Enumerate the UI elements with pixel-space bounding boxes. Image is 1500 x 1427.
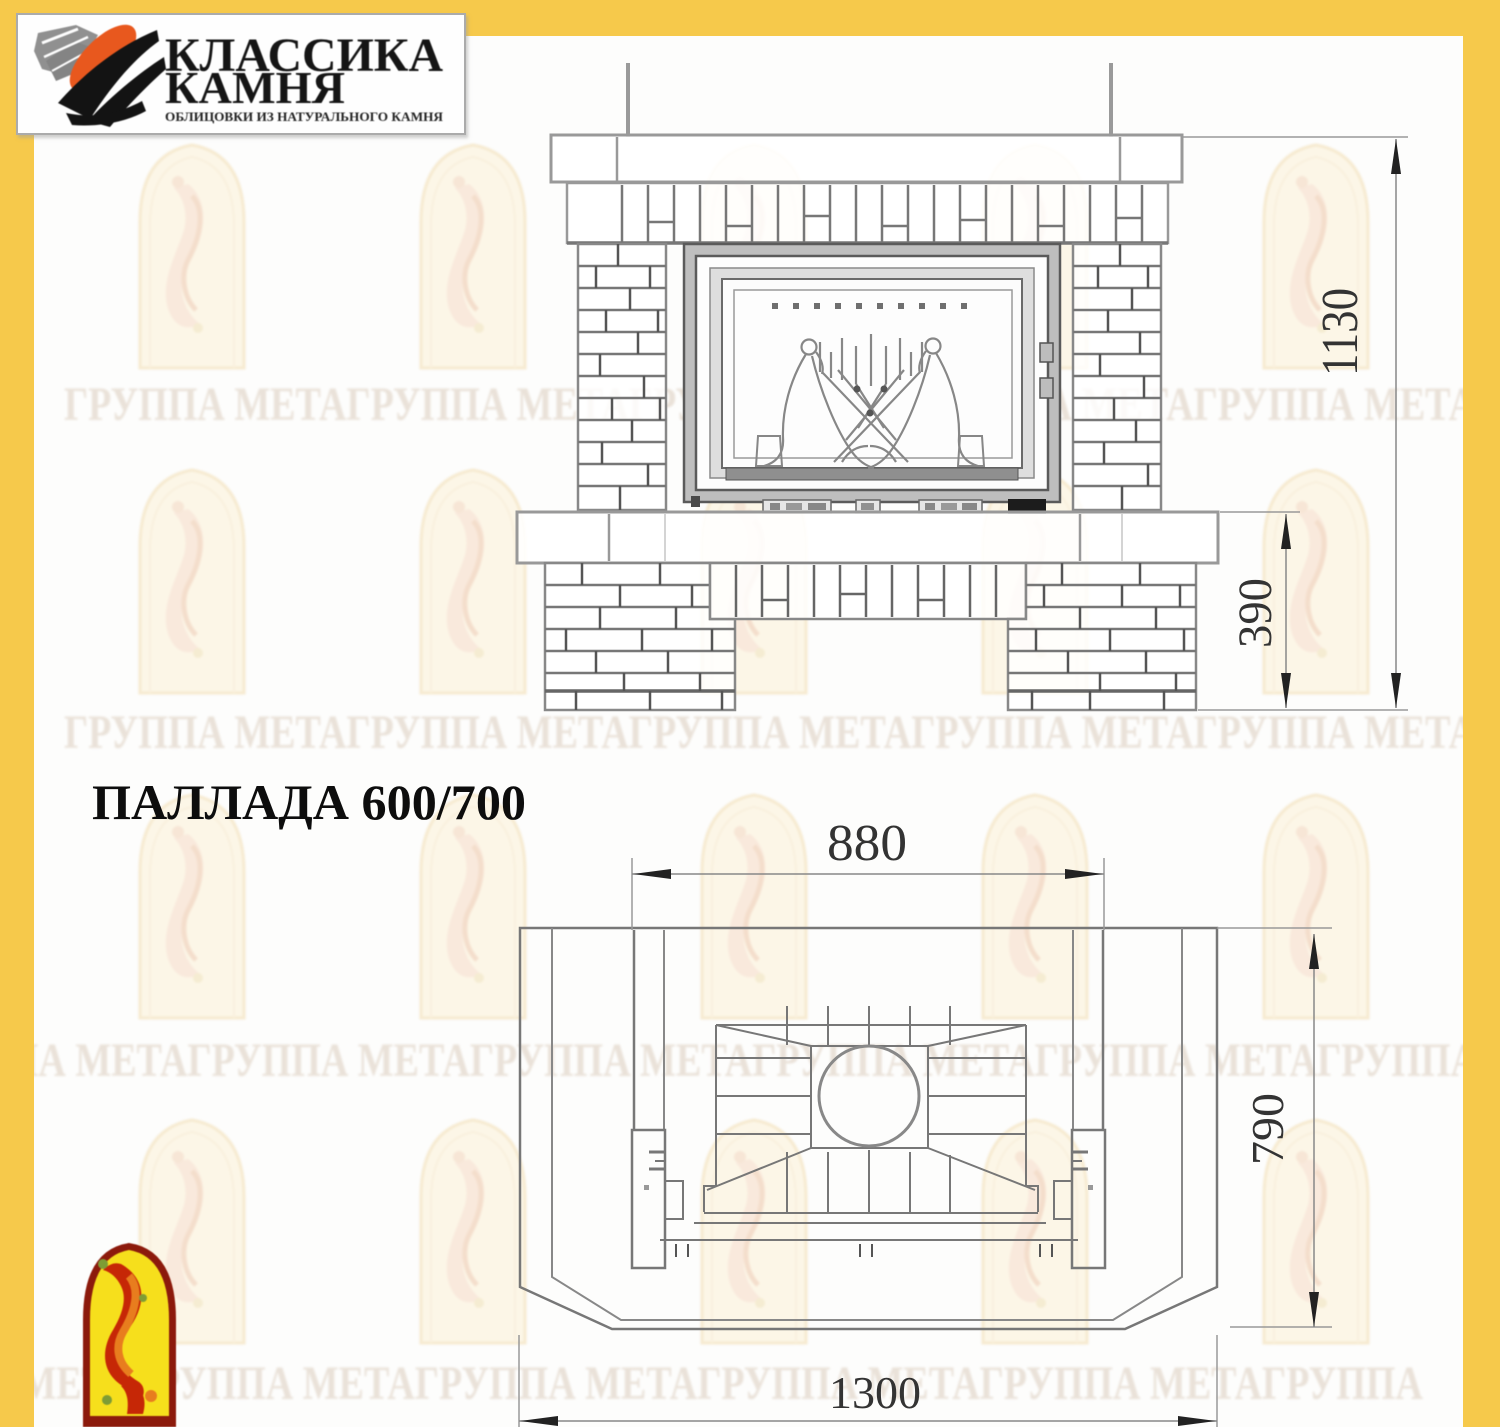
svg-text:ПАЛЛАДА 600/700: ПАЛЛАДА 600/700 <box>92 774 526 830</box>
